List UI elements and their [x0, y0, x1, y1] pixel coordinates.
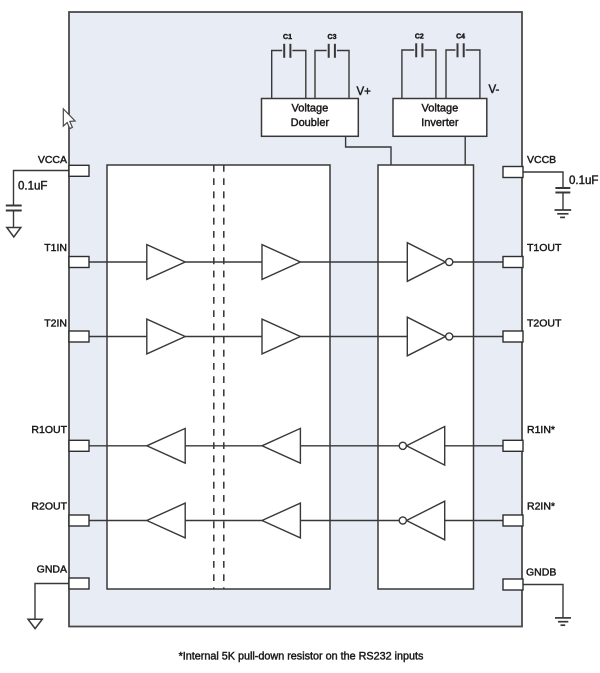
- svg-text:Inverter: Inverter: [421, 117, 459, 129]
- svg-text:C4: C4: [456, 34, 465, 41]
- svg-text:Voltage: Voltage: [292, 102, 329, 114]
- svg-text:Voltage: Voltage: [422, 102, 459, 114]
- svg-text:V+: V+: [357, 86, 372, 98]
- svg-text:VCCA: VCCA: [38, 154, 67, 166]
- svg-text:C3: C3: [328, 34, 337, 41]
- svg-text:R2IN*: R2IN*: [527, 500, 555, 512]
- svg-text:R1IN*: R1IN*: [527, 424, 555, 436]
- svg-text:R1OUT: R1OUT: [31, 424, 67, 436]
- svg-text:R2OUT: R2OUT: [31, 500, 67, 512]
- svg-text:T1OUT: T1OUT: [527, 242, 562, 254]
- svg-text:GNDA: GNDA: [37, 564, 67, 576]
- svg-text:0.1uF: 0.1uF: [18, 181, 47, 193]
- svg-text:C1: C1: [283, 34, 292, 41]
- svg-text:T1IN: T1IN: [44, 242, 67, 254]
- svg-text:T2OUT: T2OUT: [527, 318, 562, 330]
- svg-text:0.1uF: 0.1uF: [569, 175, 598, 187]
- svg-text:*Internal 5K pull-down resisto: *Internal 5K pull-down resistor on the R…: [179, 650, 424, 662]
- svg-text:C2: C2: [415, 34, 424, 41]
- svg-text:VCCB: VCCB: [527, 154, 556, 166]
- svg-text:T2IN: T2IN: [44, 318, 67, 330]
- svg-text:Doubler: Doubler: [291, 117, 330, 129]
- svg-text:V-: V-: [489, 84, 500, 96]
- svg-text:GNDB: GNDB: [526, 567, 556, 579]
